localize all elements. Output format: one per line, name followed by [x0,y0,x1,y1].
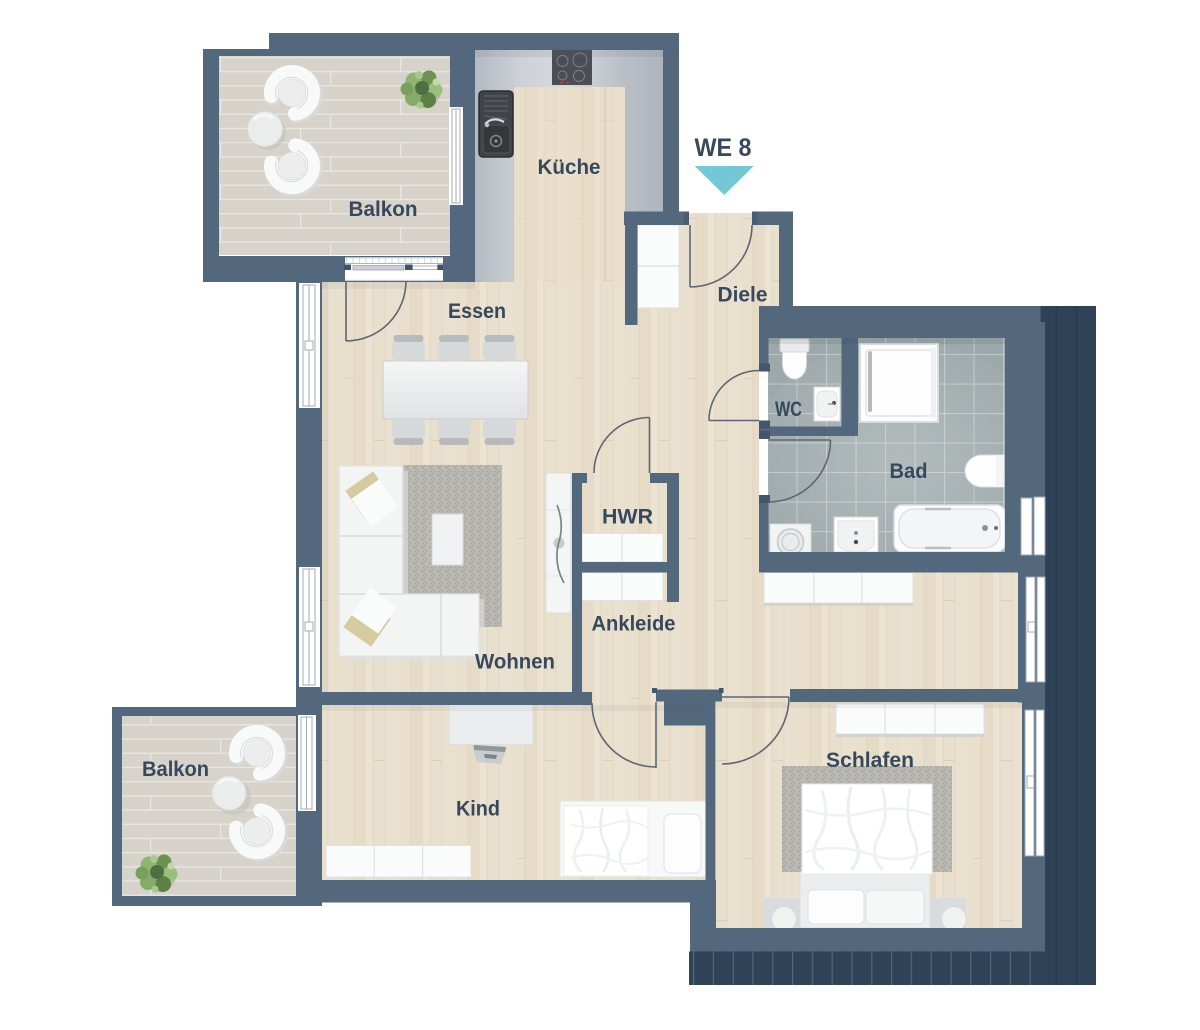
svg-text:WC: WC [775,398,802,421]
svg-text:Kind: Kind [456,798,500,821]
svg-text:Schlafen: Schlafen [826,749,914,772]
svg-text:Wohnen: Wohnen [475,651,555,674]
svg-text:Balkon: Balkon [142,758,209,781]
svg-text:Ankleide: Ankleide [592,613,676,636]
svg-text:HWR: HWR [602,506,653,529]
svg-text:Diele: Diele [718,284,768,307]
svg-text:Balkon: Balkon [349,198,418,221]
svg-text:WE 8: WE 8 [695,134,752,162]
svg-text:Bad: Bad [890,460,928,483]
svg-text:Essen: Essen [448,300,506,323]
svg-text:Küche: Küche [538,156,601,179]
